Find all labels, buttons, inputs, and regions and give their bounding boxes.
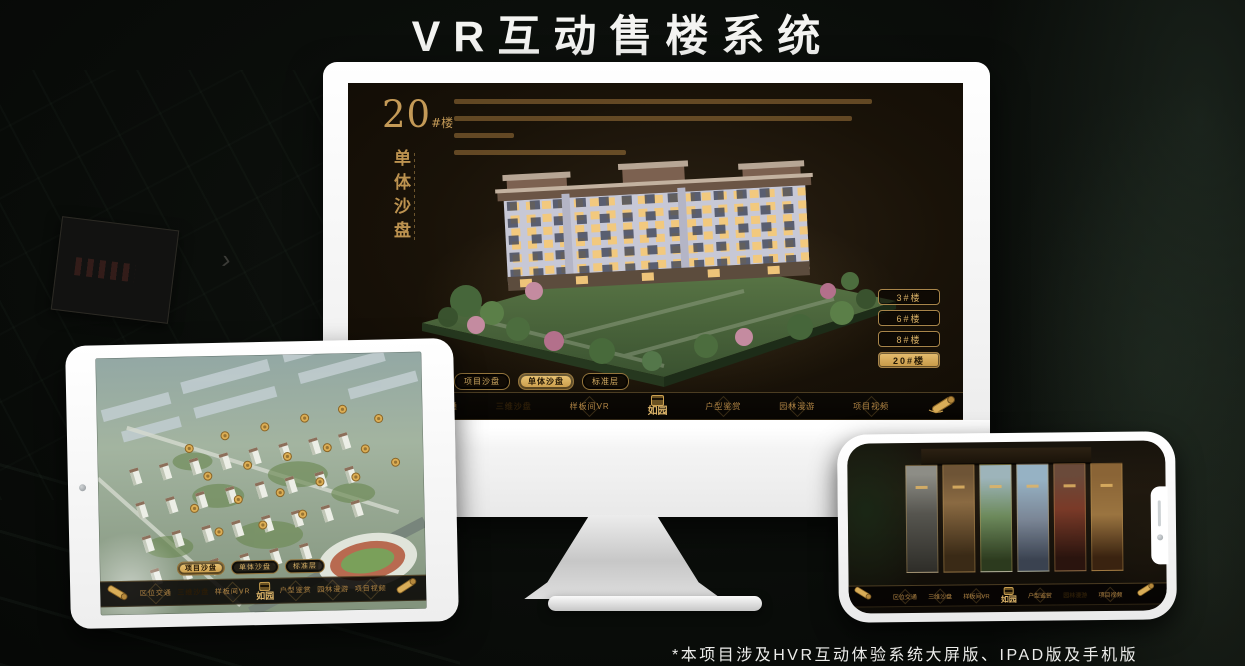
panel-title-vertical: 单体沙盘	[388, 149, 413, 245]
monitor-stand	[518, 515, 728, 599]
nav-item-3d-sandtable[interactable]: 三维沙盘	[496, 401, 532, 412]
scene-panel[interactable]	[1053, 463, 1086, 571]
nav-item-location[interactable]: 区位交通	[140, 588, 172, 599]
phone-screen: 区位交通 三维沙盘 样板间VR 如园 户型鉴赏 园林漫游 项目视频	[847, 440, 1167, 613]
nav-item-floorplans[interactable]: 户型鉴赏	[280, 585, 312, 596]
building-render	[414, 141, 904, 403]
sandtable-tabs: 项目沙盘 单体沙盘 标准层	[454, 373, 629, 390]
scroll-handle-left-icon[interactable]	[852, 583, 882, 609]
scroll-handle-left-icon[interactable]	[104, 581, 135, 608]
nav-item-floorplans[interactable]: 户型鉴赏	[705, 401, 741, 412]
nav-item-showroom-vr[interactable]: 样板间VR	[963, 591, 989, 600]
ruyuan-logo: 如园	[1001, 586, 1017, 603]
nav-item-location[interactable]: 区位交通	[893, 591, 917, 600]
speaker-icon	[1158, 500, 1161, 526]
nav-item-garden-roam[interactable]: 园林漫游	[779, 401, 815, 412]
nav-item-project-video[interactable]: 项目视频	[853, 401, 889, 412]
tab-project-sandtable[interactable]: 项目沙盘	[177, 561, 225, 576]
nav-item-project-video[interactable]: 项目视频	[355, 583, 387, 594]
scene-panel-strip	[905, 463, 1123, 573]
tablet-camera-icon	[79, 484, 86, 491]
scene-panel[interactable]	[1090, 463, 1123, 571]
scroll-handle-right-icon[interactable]	[1134, 580, 1164, 606]
nav-item-garden-roam[interactable]: 园林漫游	[1063, 590, 1087, 599]
scene-panel[interactable]	[1016, 464, 1049, 572]
tab-standard-floor[interactable]: 标准层	[285, 559, 325, 574]
nav-item-showroom-vr[interactable]: 样板间VR	[570, 401, 610, 412]
phone-navbar: 区位交通 三维沙盘 样板间VR 如园 户型鉴赏 园林漫游 项目视频	[849, 582, 1167, 607]
nav-item-floorplans[interactable]: 户型鉴赏	[1028, 590, 1052, 599]
scene-panel[interactable]	[942, 464, 975, 572]
tab-standard-floor[interactable]: 标准层	[582, 373, 629, 390]
tab-project-sandtable[interactable]: 项目沙盘	[454, 373, 510, 390]
floor-button-8[interactable]: 8#楼	[878, 331, 940, 347]
floor-button-3[interactable]: 3#楼	[878, 289, 940, 305]
footnote: *本项目涉及HVR互动体验系统大屏版、IPAD版及手机版	[672, 641, 1138, 665]
tab-single-sandtable[interactable]: 单体沙盘	[231, 560, 279, 575]
building-number-heading: 20#楼	[382, 93, 453, 136]
seal-icon	[259, 581, 270, 590]
seal-icon	[1004, 586, 1014, 594]
monitor-stand-base	[548, 596, 762, 611]
floor-button-20[interactable]: 20#楼	[878, 352, 940, 368]
tablet-device: 项目沙盘 单体沙盘 标准层 区位交通 三维沙盘 样板间VR 如园 户型鉴赏	[65, 338, 459, 629]
background-plaque	[51, 216, 180, 324]
page-title: VR互动售楼系统	[0, 2, 1245, 64]
tablet-screen: 项目沙盘 单体沙盘 标准层 区位交通 三维沙盘 样板间VR 如园 户型鉴赏	[95, 352, 426, 616]
floor-button-group: 3#楼 6#楼 8#楼 20#楼	[878, 289, 940, 368]
floor-button-6[interactable]: 6#楼	[878, 310, 940, 326]
nav-item-showroom-vr[interactable]: 样板间VR	[215, 586, 251, 597]
nav-item-3d-sandtable[interactable]: 三维沙盘	[928, 591, 952, 600]
scroll-handle-right-icon[interactable]	[392, 575, 423, 602]
nav-item-3d-sandtable[interactable]: 三维沙盘	[177, 587, 209, 598]
nav-item-project-video[interactable]: 项目视频	[1098, 589, 1122, 598]
promo-canvas: › VR互动售楼系统 20#楼 单体沙盘	[0, 0, 1245, 666]
scene-panel[interactable]	[905, 465, 938, 573]
phone-device: 区位交通 三维沙盘 样板间VR 如园 户型鉴赏 园林漫游 项目视频	[837, 431, 1177, 623]
tab-single-sandtable[interactable]: 单体沙盘	[518, 373, 574, 390]
ruyuan-logo: 如园	[648, 395, 668, 417]
ruyuan-logo: 如园	[256, 581, 274, 600]
scene-panel[interactable]	[979, 464, 1012, 572]
seal-icon	[651, 395, 664, 406]
camera-icon	[1157, 534, 1163, 540]
phone-notch	[1151, 486, 1169, 564]
nav-item-garden-roam[interactable]: 园林漫游	[317, 584, 349, 595]
scroll-handle-right-icon[interactable]	[927, 393, 957, 419]
